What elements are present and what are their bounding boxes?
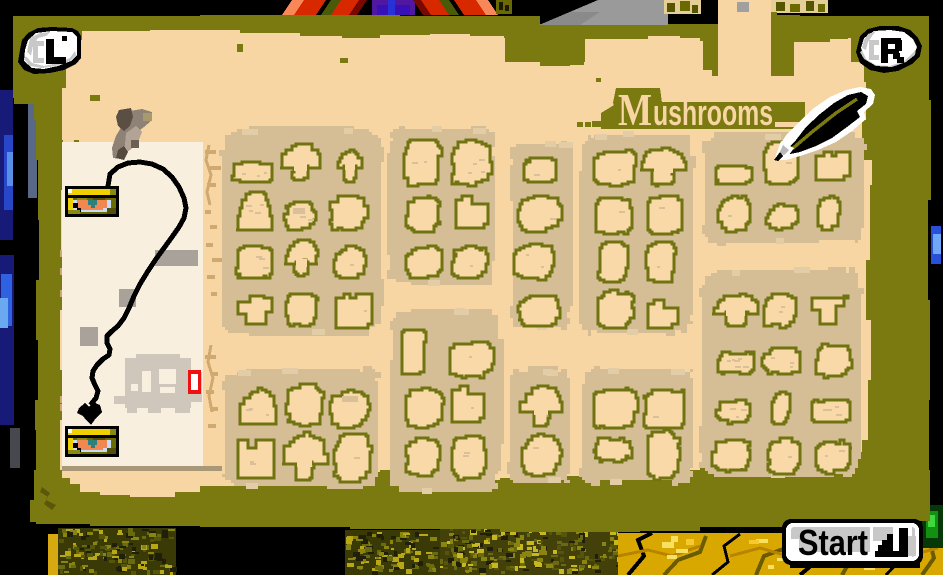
svg-text:M: M <box>618 84 652 135</box>
svg-text:ushrooms: ushrooms <box>653 92 773 133</box>
svg-text:Start: Start <box>798 522 868 563</box>
